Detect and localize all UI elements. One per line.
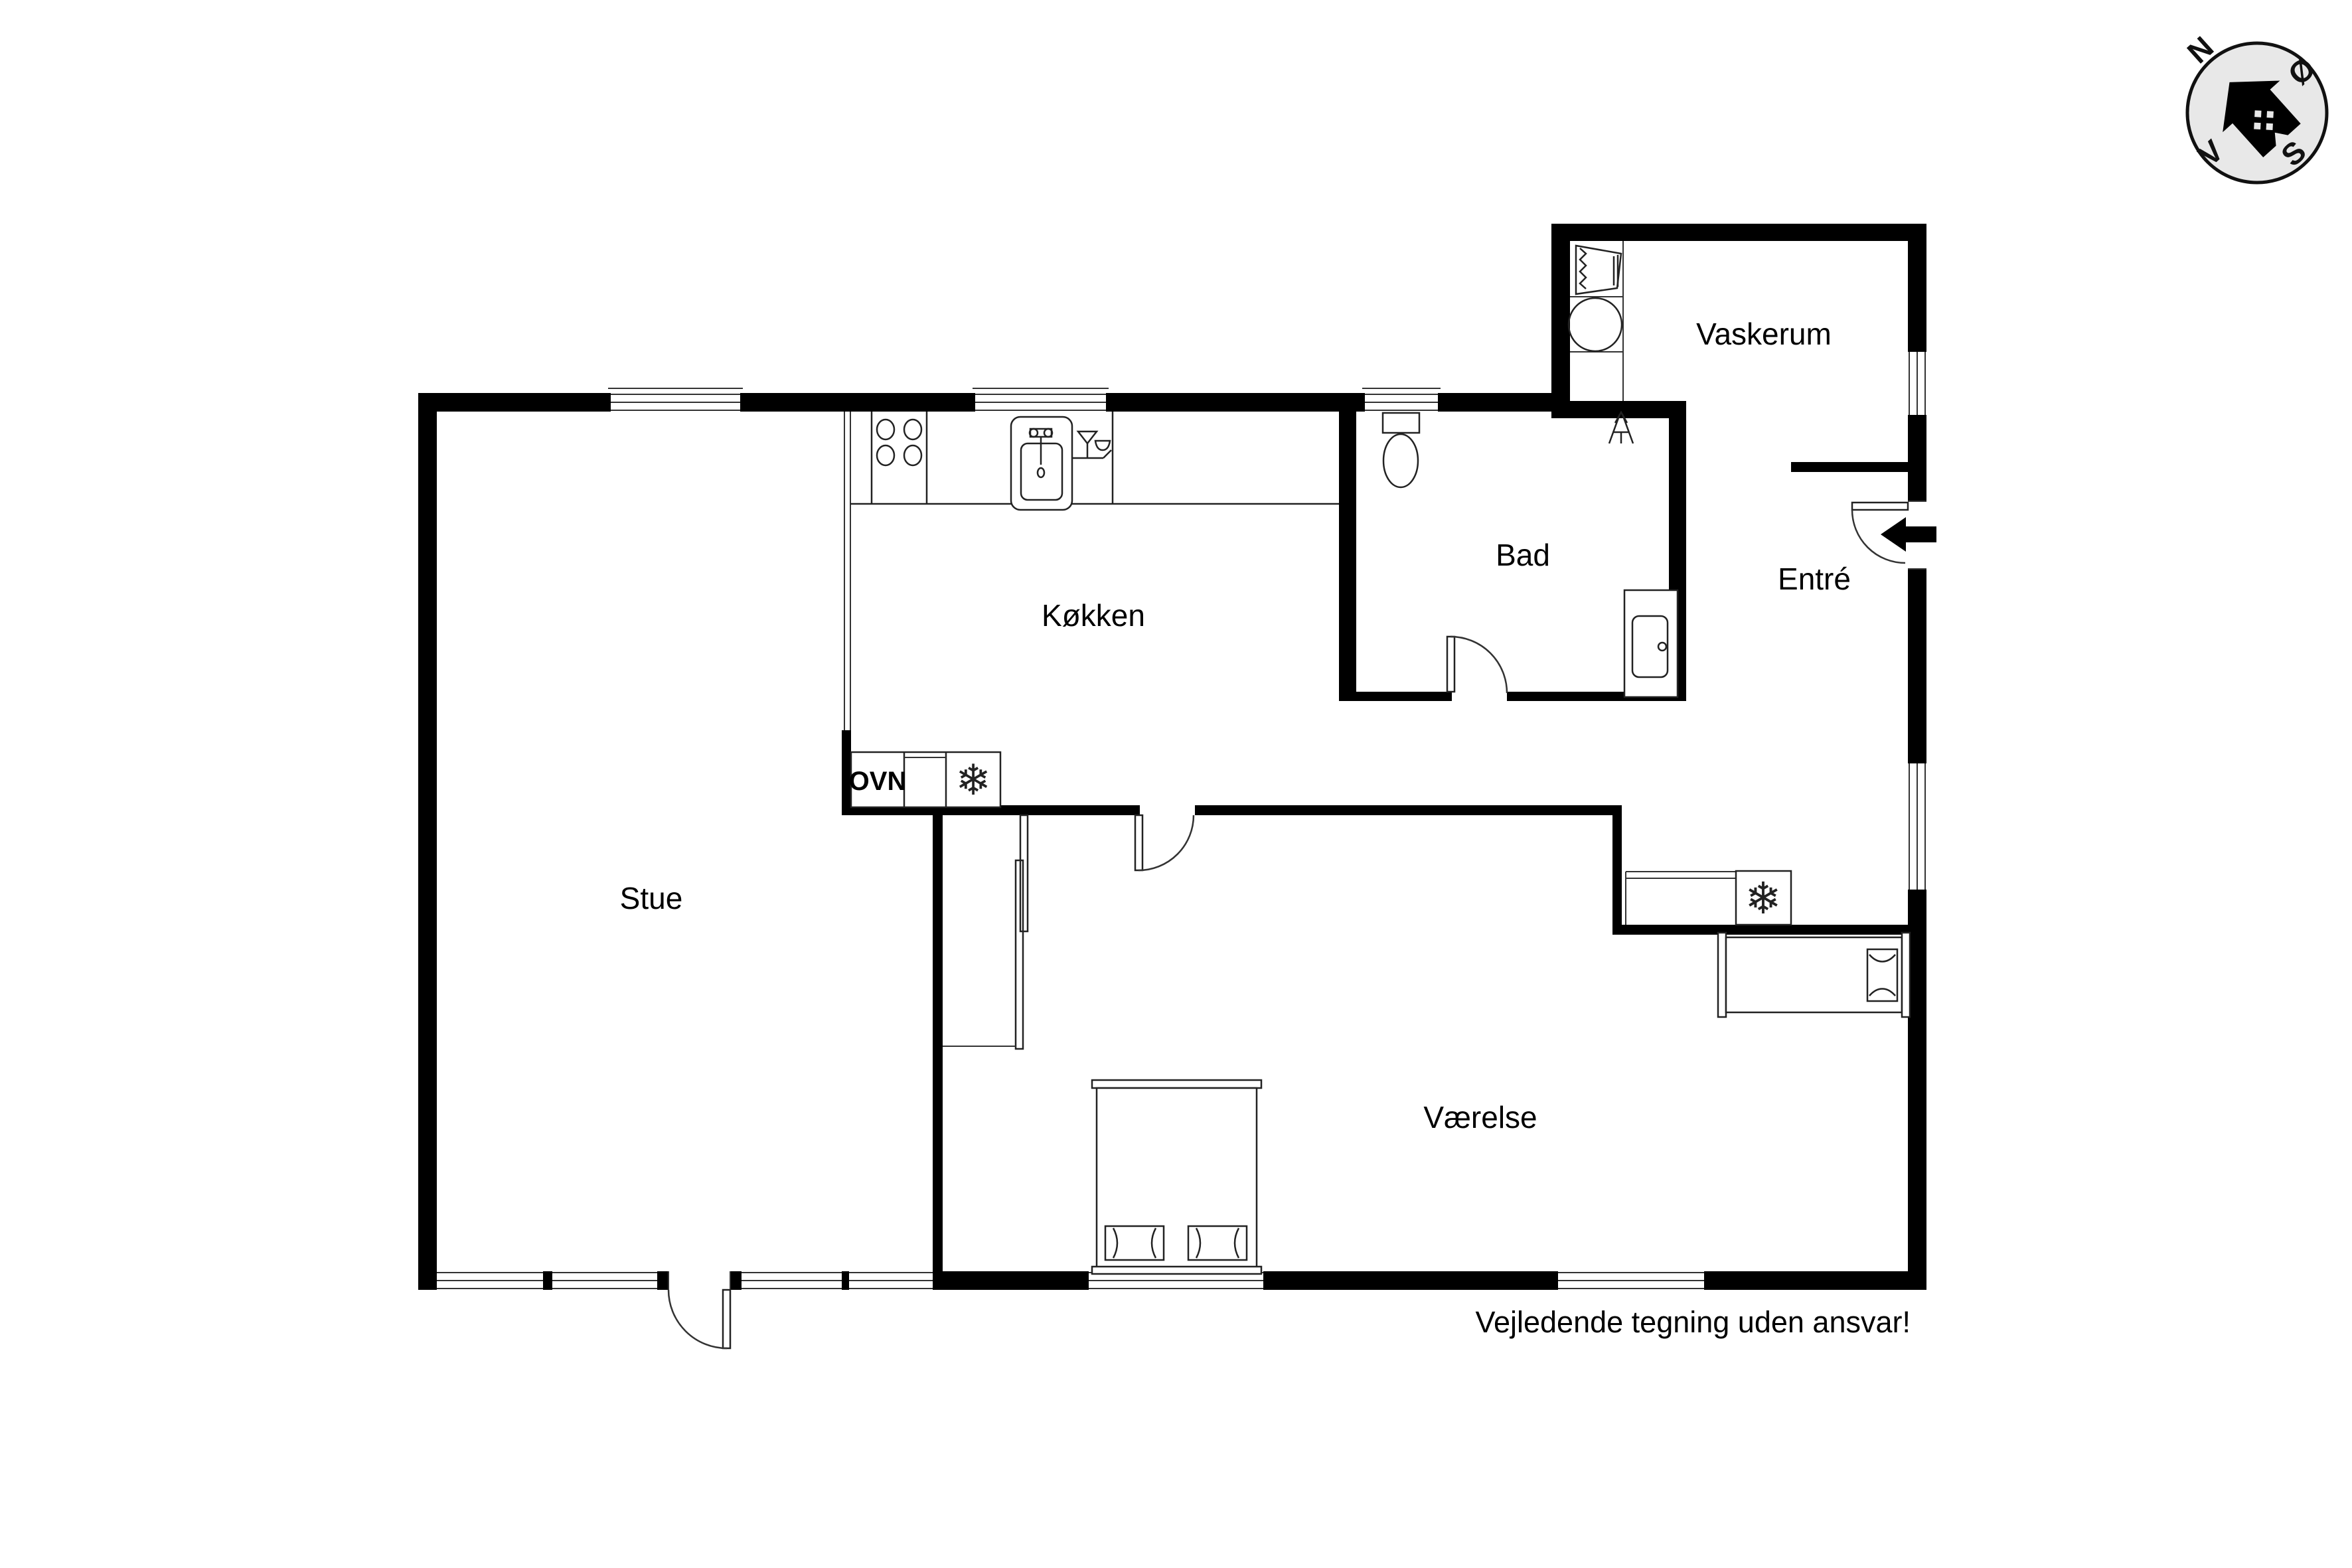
kitchen-sink-icon — [1011, 417, 1072, 510]
bath-sink-icon — [1624, 590, 1678, 697]
disclaimer-text: Vejledende tegning uden ansvar! — [1475, 1305, 1911, 1339]
room-label-vaerelse: Værelse — [1423, 1100, 1537, 1135]
double-bed — [1092, 1080, 1261, 1274]
wall-koekken-vaerelse-right — [1195, 805, 1622, 815]
room-label-stue: Stue — [620, 881, 683, 915]
snowflake-icon: ❄ — [955, 756, 991, 805]
wall-vaskerum-left — [1551, 224, 1570, 412]
room-label-koekken: Køkken — [1042, 598, 1145, 633]
wall-vaskerum-top — [1551, 224, 1926, 241]
door-leaf — [1135, 815, 1142, 870]
wall-bad-left — [1339, 393, 1356, 701]
room-label-entre: Entré — [1778, 562, 1851, 596]
door-leaf — [723, 1290, 730, 1348]
window-bottom-4 — [849, 1271, 933, 1290]
wall-entre-vaskerum-divider — [1791, 462, 1908, 472]
wall-bad-bottom-left — [1339, 692, 1452, 701]
wall-left — [418, 393, 437, 1290]
door-leaf — [1852, 503, 1908, 510]
wall-entre-vaerelse-divider — [1612, 925, 1908, 935]
snowflake-icon: ❄ — [1745, 873, 1781, 924]
door-leaf — [1447, 637, 1454, 692]
single-bed — [1718, 933, 1910, 1017]
wall-stue-vaerelse-divider — [933, 805, 943, 1271]
window-right-vaskerum — [1908, 352, 1926, 415]
window-bottom-vaerelse — [1558, 1271, 1704, 1290]
window-bottom-1 — [437, 1271, 543, 1290]
oven-fridge-block: OVN ❄ — [849, 752, 1000, 807]
canvas-background — [0, 0, 2352, 1568]
room-label-bad: Bad — [1496, 538, 1550, 572]
window-right-entre — [1908, 763, 1926, 890]
window-bottom-2 — [552, 1271, 657, 1290]
toilet-icon — [1383, 413, 1419, 487]
window-bottom-3 — [742, 1271, 842, 1290]
floor-plan: OVN ❄ — [0, 0, 2352, 1568]
oven-label: OVN — [849, 767, 907, 796]
room-label-vaskerum: Vaskerum — [1696, 317, 1832, 351]
wall-jog-vertical — [1612, 805, 1622, 935]
